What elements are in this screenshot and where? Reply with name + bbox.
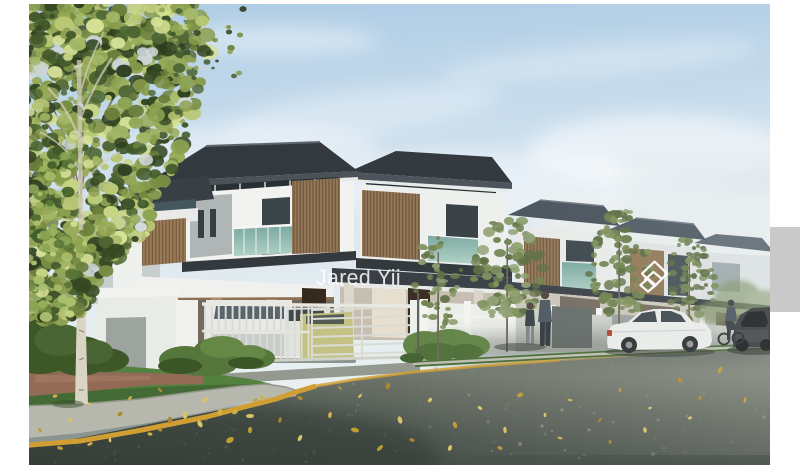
svg-text:Jared Yii: Jared Yii [316, 265, 401, 290]
